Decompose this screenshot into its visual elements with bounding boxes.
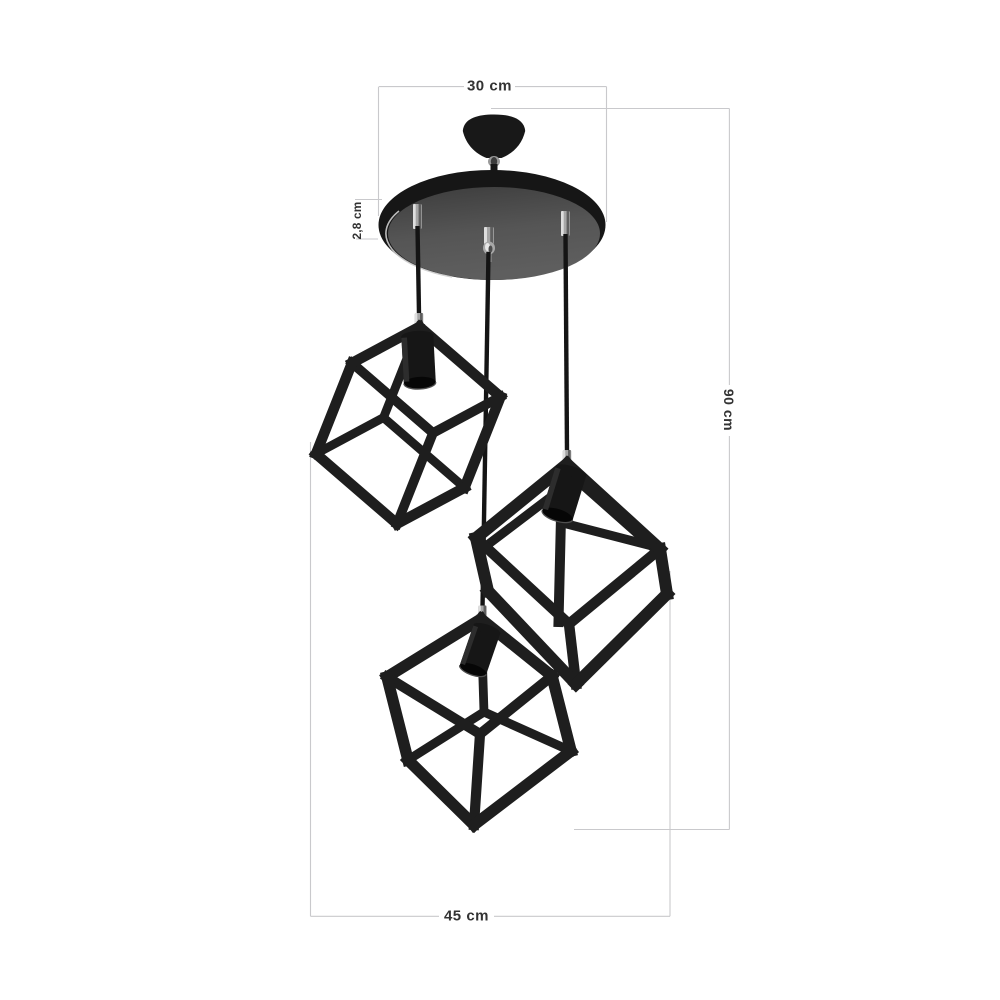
svg-text:90 cm: 90 cm xyxy=(721,389,737,431)
svg-text:45 cm: 45 cm xyxy=(444,907,489,924)
svg-text:30 cm: 30 cm xyxy=(467,78,512,95)
svg-text:2,8 cm: 2,8 cm xyxy=(350,202,364,240)
